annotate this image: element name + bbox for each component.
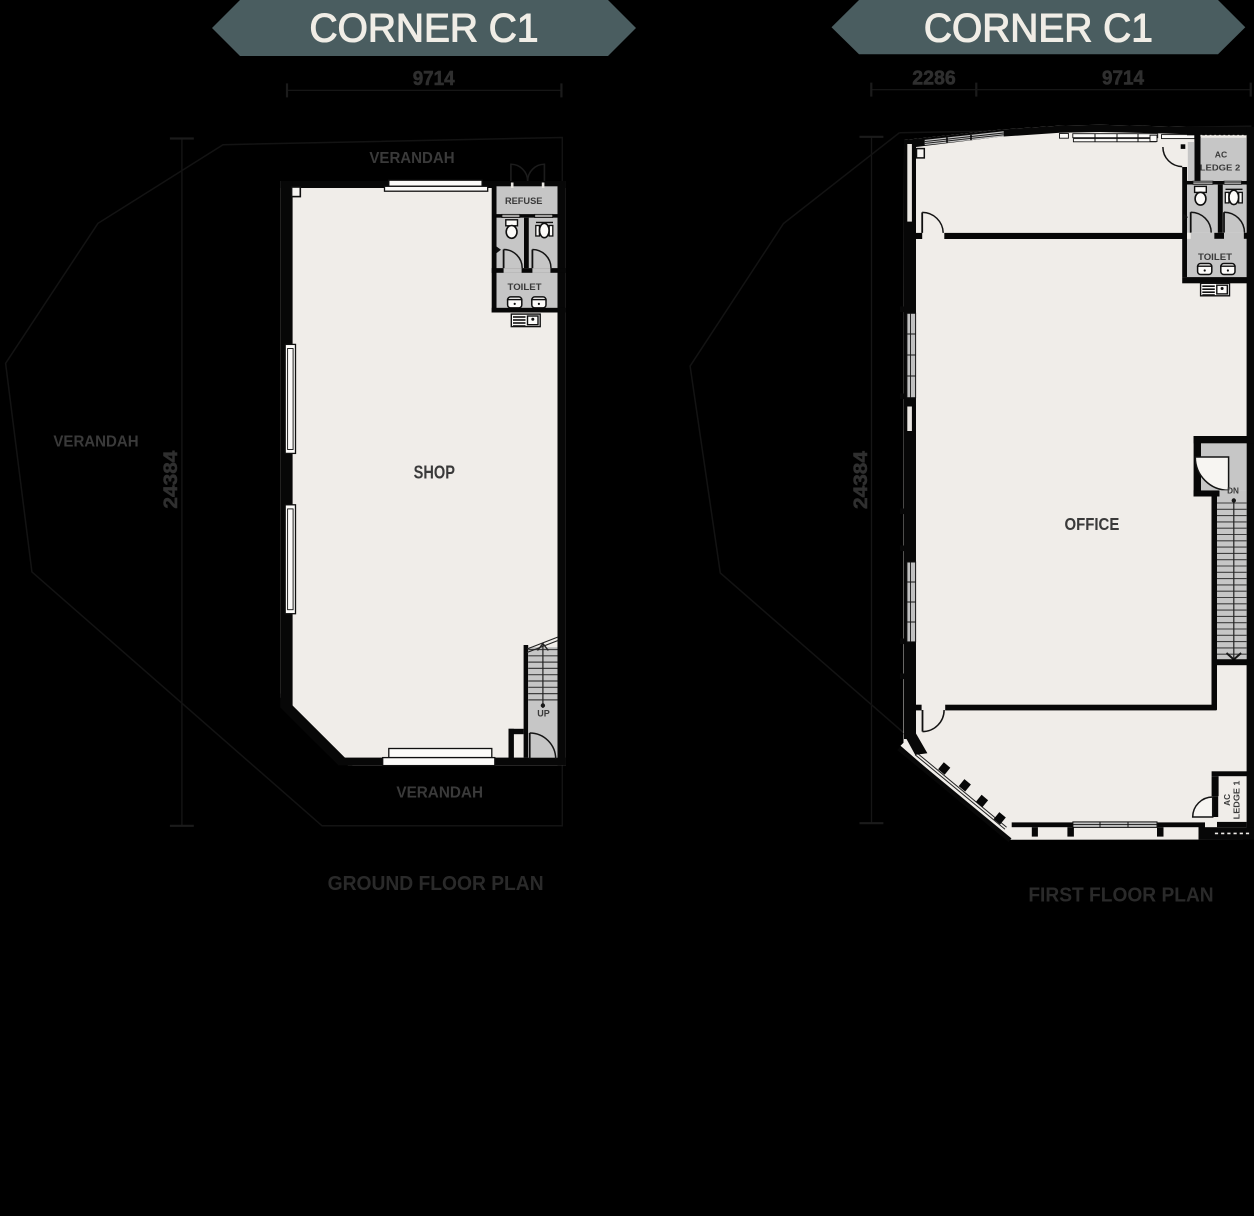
svg-text:OFFICE: OFFICE	[1064, 514, 1119, 534]
svg-text:2286: 2286	[912, 68, 956, 90]
svg-text:CORNER C1: CORNER C1	[310, 7, 539, 51]
svg-text:TOILET: TOILET	[1198, 252, 1232, 263]
svg-text:24384: 24384	[850, 451, 872, 509]
svg-text:AC: AC	[1223, 794, 1232, 806]
svg-text:TOILET: TOILET	[508, 282, 542, 293]
svg-text:VERANDAH: VERANDAH	[369, 150, 454, 167]
svg-text:9714: 9714	[413, 68, 456, 90]
svg-text:AC: AC	[1215, 149, 1227, 159]
svg-text:CORNER C1: CORNER C1	[924, 7, 1153, 51]
svg-text:LEDGE 1: LEDGE 1	[1232, 780, 1241, 819]
svg-text:DN: DN	[1227, 487, 1239, 496]
svg-text:GROUND FLOOR PLAN: GROUND FLOOR PLAN	[328, 873, 544, 895]
svg-text:FIRST FLOOR PLAN: FIRST FLOOR PLAN	[1028, 885, 1213, 907]
svg-text:REFUSE: REFUSE	[505, 196, 543, 207]
svg-text:UP: UP	[537, 709, 550, 719]
svg-text:SHOP: SHOP	[414, 462, 455, 482]
svg-text:24384: 24384	[160, 451, 182, 509]
svg-text:LEDGE 2: LEDGE 2	[1200, 163, 1241, 173]
svg-text:9714: 9714	[1102, 68, 1145, 90]
svg-text:VERANDAH: VERANDAH	[53, 433, 138, 450]
svg-text:VERANDAH: VERANDAH	[396, 785, 483, 802]
